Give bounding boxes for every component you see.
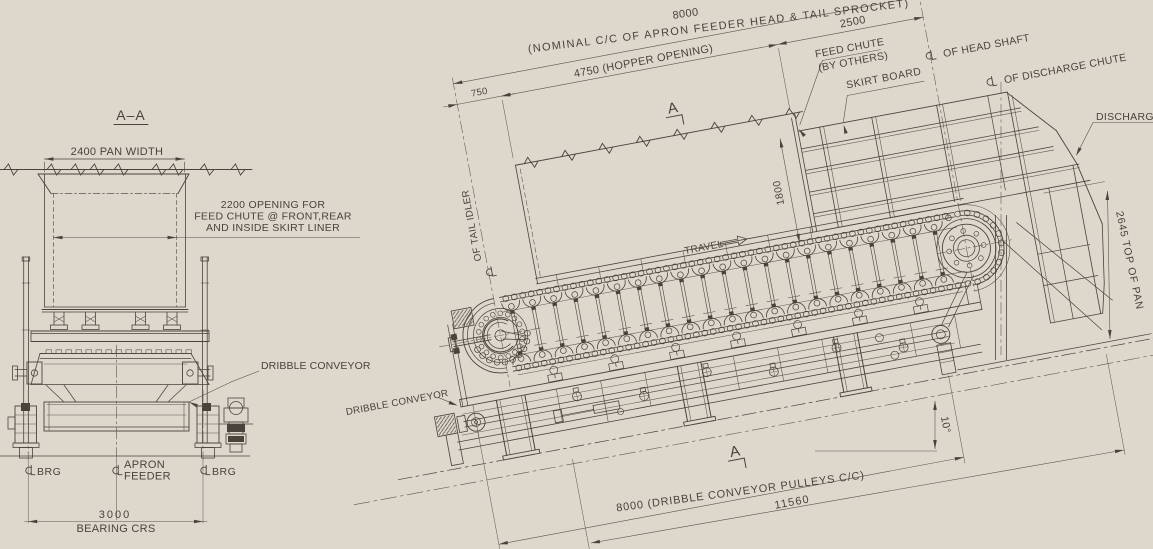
svg-text:DRIBBLE CONVEYOR: DRIBBLE CONVEYOR xyxy=(261,360,371,372)
svg-text:DISCHARGE CH: DISCHARGE CH xyxy=(1096,111,1153,123)
svg-text:A–A: A–A xyxy=(116,107,145,123)
svg-text:BRG: BRG xyxy=(37,466,61,478)
svg-text:2200 OPENING FOR: 2200 OPENING FOR xyxy=(221,199,326,211)
svg-text:BRG: BRG xyxy=(212,466,236,478)
svg-text:3000: 3000 xyxy=(99,509,131,521)
svg-text:AND INSIDE SKIRT LINER: AND INSIDE SKIRT LINER xyxy=(206,222,340,234)
svg-text:2400 PAN WIDTH: 2400 PAN WIDTH xyxy=(71,146,164,158)
svg-text:APRON: APRON xyxy=(124,459,165,471)
svg-text:BEARING CRS: BEARING CRS xyxy=(76,523,155,535)
svg-text:FEED CHUTE @ FRONT,REAR: FEED CHUTE @ FRONT,REAR xyxy=(194,211,352,223)
svg-text:FEEDER: FEEDER xyxy=(124,471,171,483)
